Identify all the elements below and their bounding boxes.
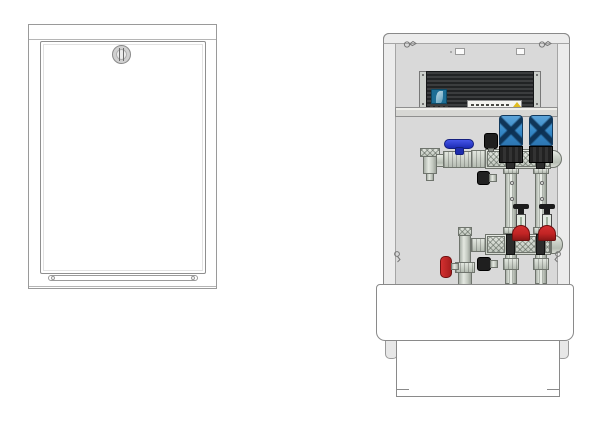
- thermal-actuator-1-base: [499, 146, 523, 163]
- flow-meter-1-body: [512, 225, 530, 241]
- closed-cabinet-top-frame-line: [29, 39, 216, 40]
- base-extension: [396, 341, 560, 397]
- thermal-actuator-1: [499, 115, 523, 146]
- vent-cap-valve: [484, 133, 498, 149]
- vent-cap-stem: [488, 148, 494, 152]
- supply-elbow-body: [423, 156, 437, 174]
- bracket-screw: [536, 103, 538, 105]
- manifold-segment: [487, 236, 505, 253]
- pipe-sight-window: [540, 181, 544, 185]
- thermal-actuator-2: [529, 115, 553, 146]
- flow-meter-2-body: [538, 225, 556, 241]
- loop-nut: [533, 258, 549, 270]
- wall-slot: [455, 48, 465, 55]
- blue-valve-pivot: [455, 147, 464, 155]
- supply-elbow-outlet: [426, 173, 434, 181]
- door-bottom-trim: [48, 275, 198, 281]
- bracket-screw: [536, 74, 538, 76]
- drain-spout: [489, 174, 497, 182]
- red-valve-link: [451, 263, 459, 270]
- pipe-sight-window: [540, 197, 544, 201]
- return-drain-spout: [490, 260, 498, 268]
- trim-screw-left: [51, 276, 55, 280]
- bracket-screw: [422, 103, 424, 105]
- brand-logo: [431, 89, 447, 104]
- supply-union-nut: [471, 150, 486, 168]
- base-corner-mark: [397, 389, 409, 390]
- illustration-canvas: [0, 0, 600, 425]
- pipe-sight-window: [510, 197, 514, 201]
- keyhole-mount-icon: [538, 39, 552, 49]
- door-lock-slot-icon: [119, 48, 124, 61]
- pipe-sight-window: [510, 181, 514, 185]
- trim-screw-right: [191, 276, 195, 280]
- closed-cabinet-bottom-frame-line: [29, 286, 216, 287]
- brand-logo-swirl: [436, 91, 443, 104]
- wall-slot: [516, 48, 525, 55]
- bracket-screw: [422, 74, 424, 76]
- bottom-cover-band: [376, 284, 574, 341]
- keyhole-mount-icon: [403, 39, 417, 49]
- thermal-actuator-2-base: [529, 146, 553, 163]
- return-riser-body: [459, 235, 471, 264]
- wall-slot-dot: [450, 51, 452, 53]
- loop-nut: [503, 258, 519, 270]
- cabinet-door: [40, 41, 206, 274]
- return-drain-knob: [477, 257, 491, 271]
- keyhole-mount-icon: [552, 250, 564, 263]
- warning-label-fineprint: [471, 104, 511, 106]
- keyhole-mount-icon: [391, 250, 403, 263]
- base-corner-mark: [547, 389, 559, 390]
